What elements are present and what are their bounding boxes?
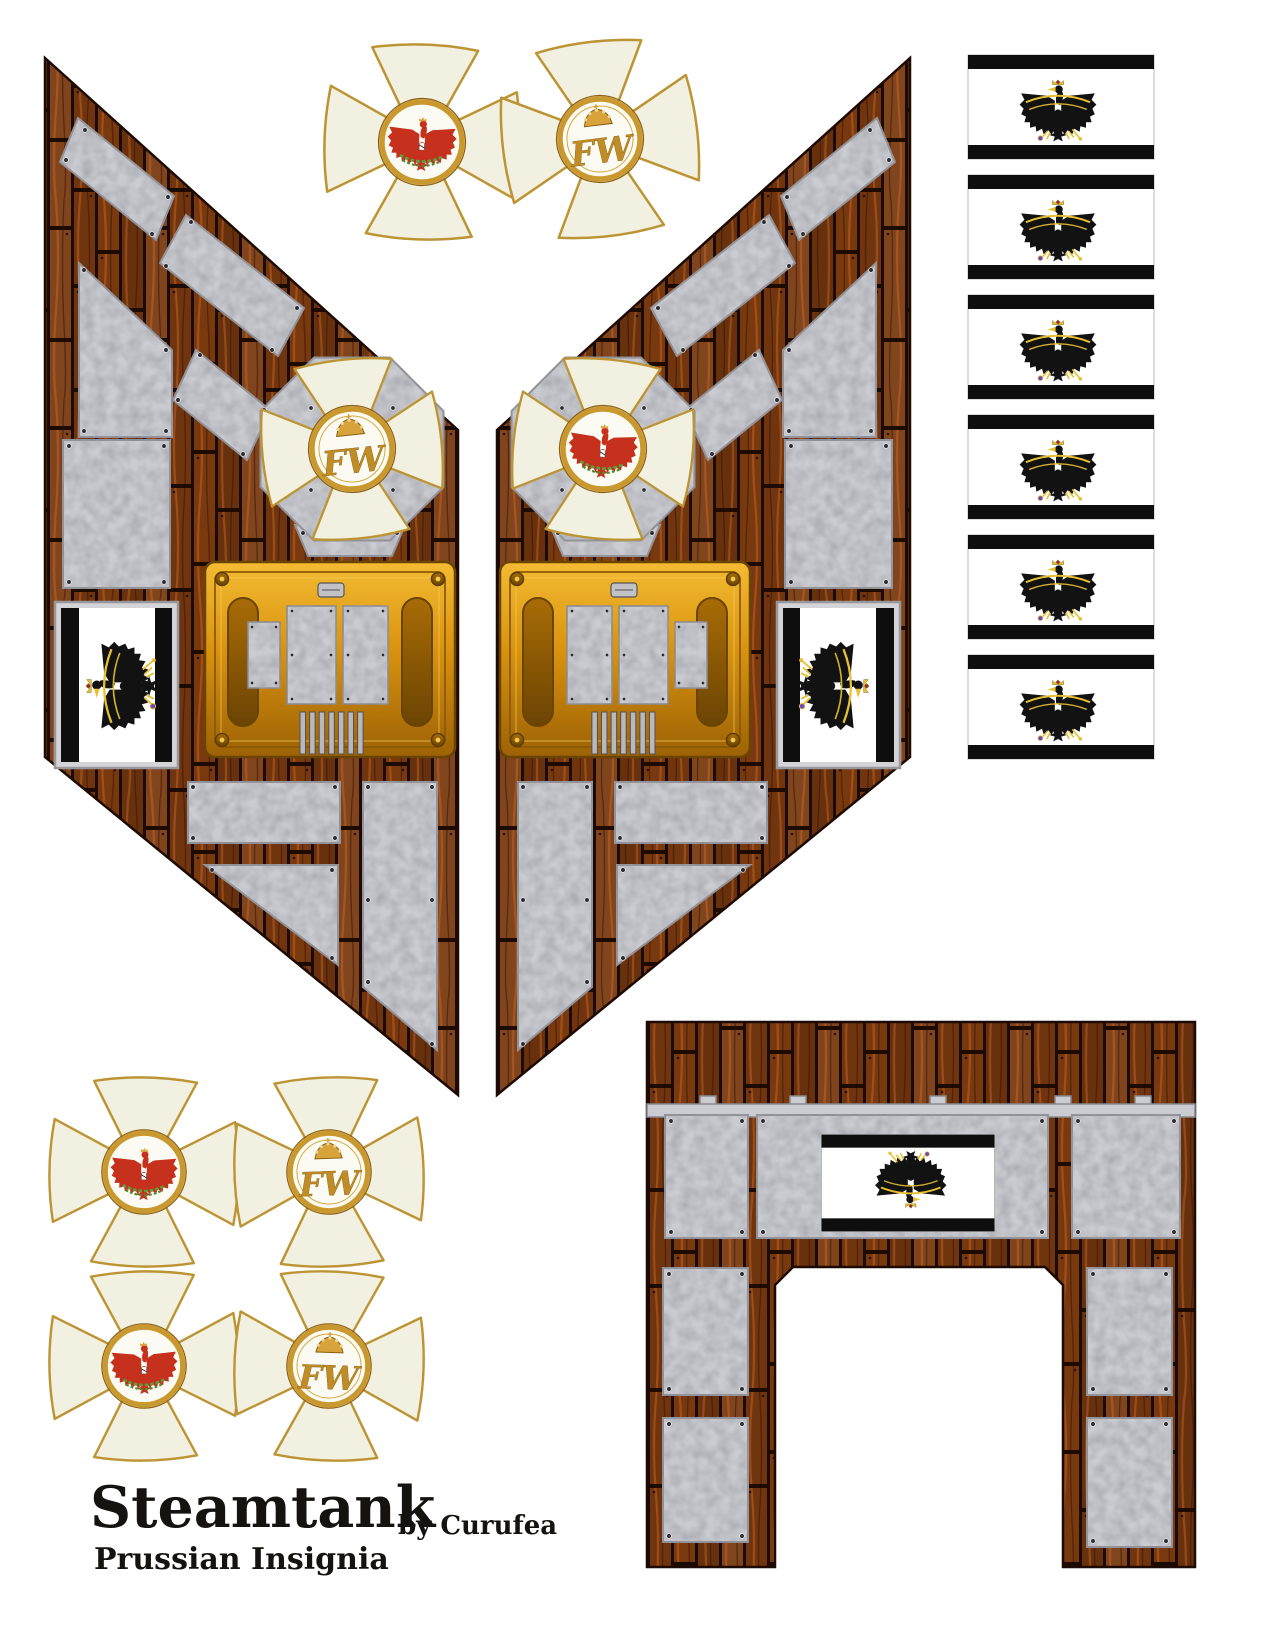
- prussian-flag: [968, 295, 1154, 399]
- framed-flag: [55, 602, 178, 768]
- prussian-flag: [968, 655, 1154, 759]
- engine-hatch-plate: [205, 562, 455, 757]
- subtitle: Prussian Insignia: [94, 1542, 389, 1577]
- steamtank-insignia-sheet: FW: [0, 0, 1275, 1650]
- prussian-flag: [968, 415, 1154, 519]
- page-title: Steamtank: [90, 1474, 437, 1541]
- prussian-flag: [968, 55, 1154, 159]
- byline: by Curufea: [398, 1511, 557, 1541]
- inverted-flag: [822, 1135, 995, 1232]
- prussian-flag: [968, 175, 1154, 279]
- vent-grille: [300, 712, 363, 754]
- papercraft-canvas: FW: [0, 0, 1275, 1650]
- handle-recess: [402, 598, 432, 726]
- prussian-flag: [968, 535, 1154, 639]
